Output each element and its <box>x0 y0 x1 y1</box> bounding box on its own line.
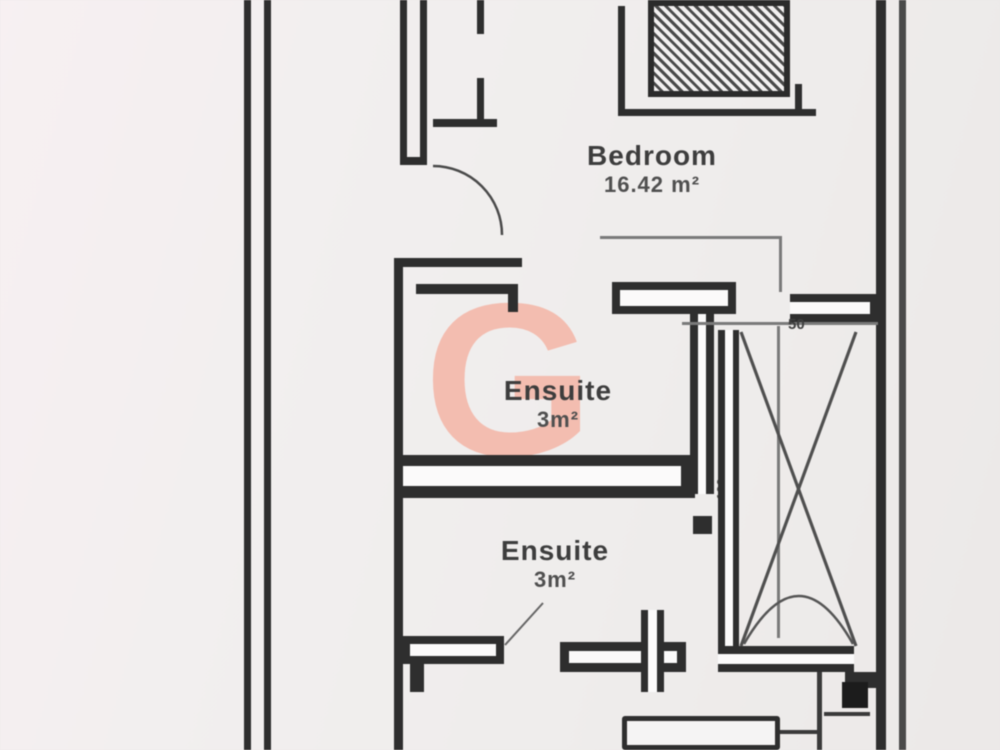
ensuite2-label: Ensuite 3m² <box>455 535 655 592</box>
ensuite1-area: 3m² <box>458 407 658 432</box>
ensuite1-label: Ensuite 3m² <box>458 375 658 432</box>
floor-plan: G 50 100 <box>0 0 1000 750</box>
ensuite2-name: Ensuite <box>455 535 655 567</box>
bedroom-door-arc <box>433 166 502 235</box>
shaft-door-arch <box>744 596 853 644</box>
bedroom-name: Bedroom <box>552 140 752 172</box>
ensuite1-name: Ensuite <box>458 375 658 407</box>
ensuite2-area: 3m² <box>455 567 655 592</box>
bedroom-area: 16.42 m² <box>552 172 752 197</box>
ensuite2-door-leaf <box>505 603 543 645</box>
bedroom-label: Bedroom 16.42 m² <box>552 140 752 197</box>
